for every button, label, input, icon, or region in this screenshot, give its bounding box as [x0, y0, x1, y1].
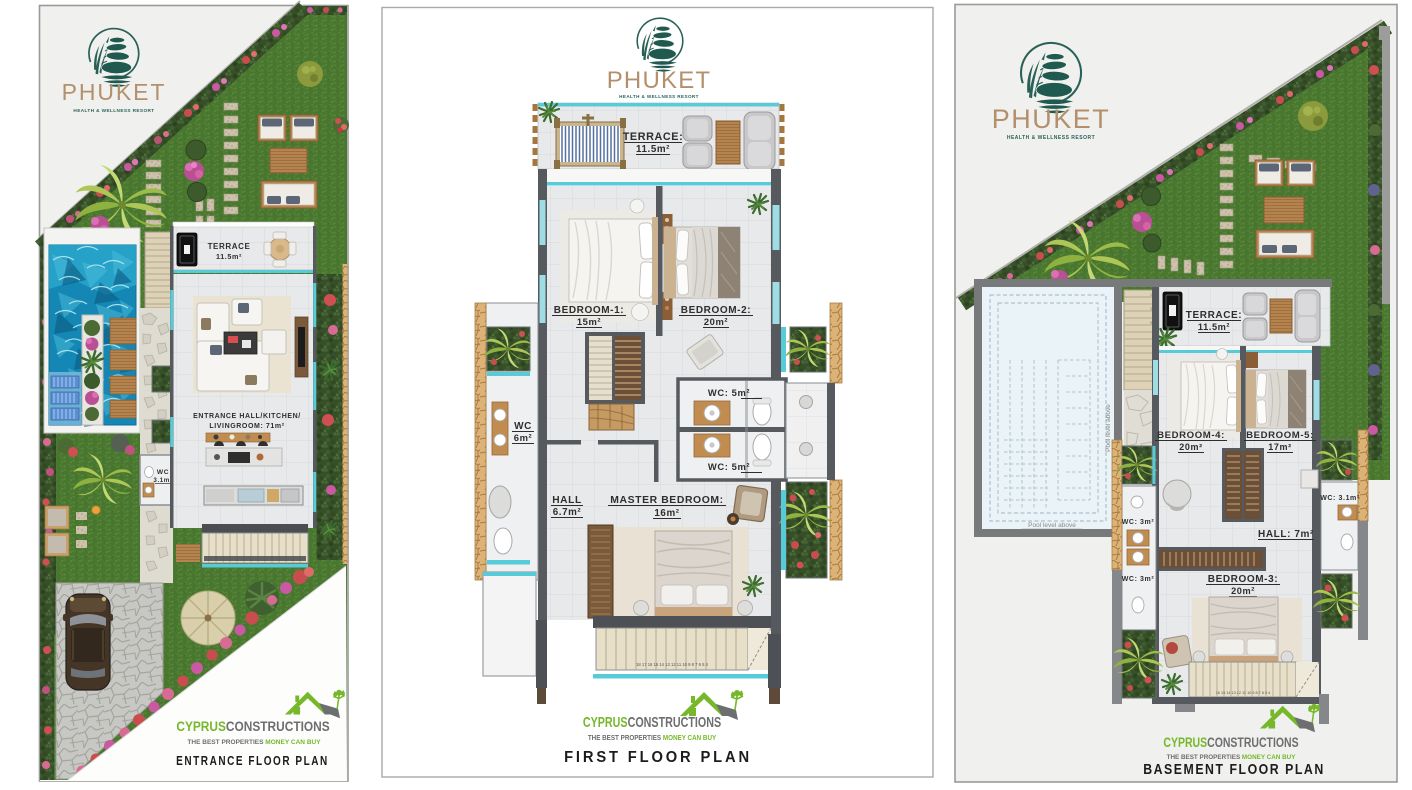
svg-text:BEDROOM-4:: BEDROOM-4:: [1157, 430, 1225, 441]
svg-text:17m²: 17m²: [1268, 442, 1291, 452]
svg-text:11.5m²: 11.5m²: [1198, 322, 1230, 332]
svg-text:HALL: 7m²: HALL: 7m²: [1258, 529, 1314, 540]
svg-text:PHUKET: PHUKET: [62, 79, 167, 105]
svg-text:3: 3: [1150, 307, 1152, 311]
svg-text:CYPRUSCONSTRUCTIONS: CYPRUSCONSTRUCTIONS: [176, 718, 330, 734]
svg-text:PHUKET: PHUKET: [992, 104, 1111, 134]
svg-text:HEALTH & WELLNESS RESORT: HEALTH & WELLNESS RESORT: [1007, 135, 1095, 141]
svg-text:TERRACE:: TERRACE:: [1186, 310, 1242, 321]
svg-text:THE BEST PROPERTIES MONEY CAN: THE BEST PROPERTIES MONEY CAN BUY: [1167, 754, 1296, 761]
svg-text:FIRST FLOOR PLAN: FIRST FLOOR PLAN: [564, 749, 752, 766]
svg-text:BEDROOM-1:: BEDROOM-1:: [554, 305, 624, 316]
svg-text:11.5m²: 11.5m²: [636, 144, 670, 155]
svg-text:THE BEST PROPERTIES MONEY CAN: THE BEST PROPERTIES MONEY CAN BUY: [588, 735, 717, 742]
svg-text:15m²: 15m²: [577, 316, 601, 327]
svg-text:18 17 16 15 14 13 12 11: 18 17 16 15 14 13 12 11 10 9 8 7 6 5 4: [636, 662, 709, 667]
svg-text:PHUKET: PHUKET: [607, 67, 712, 94]
svg-text:20m²: 20m²: [704, 316, 728, 327]
svg-text:3.1m²: 3.1m²: [153, 477, 172, 484]
svg-text:TERRACE: TERRACE: [208, 242, 251, 251]
svg-text:HALL: HALL: [552, 495, 582, 506]
svg-text:20m²: 20m²: [1231, 586, 1255, 596]
svg-text:5: 5: [1150, 321, 1152, 325]
svg-text:ENTRANCE FLOOR PLAN: ENTRANCE FLOOR PLAN: [176, 754, 329, 769]
svg-text:WC: WC: [514, 421, 532, 432]
svg-text:THE BEST PROPERTIES MONEY CAN: THE BEST PROPERTIES MONEY CAN BUY: [187, 739, 321, 746]
svg-text:HEALTH & WELLNESS RESORT: HEALTH & WELLNESS RESORT: [73, 108, 154, 113]
svg-text:WC: 3m²: WC: 3m²: [1122, 519, 1155, 526]
svg-text:BEDROOM-3:: BEDROOM-3:: [1208, 574, 1278, 585]
svg-text:WC: 5m²: WC: 5m²: [708, 461, 750, 472]
svg-text:CYPRUSCONSTRUCTIONS: CYPRUSCONSTRUCTIONS: [583, 713, 721, 730]
svg-text:1: 1: [1150, 293, 1152, 297]
svg-text:Pool level above: Pool level above: [1028, 522, 1076, 529]
svg-text:WC: 3.1m²: WC: 3.1m²: [1320, 495, 1360, 502]
svg-text:WC: WC: [157, 469, 169, 476]
svg-text:CYPRUSCONSTRUCTIONS: CYPRUSCONSTRUCTIONS: [1163, 735, 1298, 751]
svg-text:LIVINGROOM: 71m²: LIVINGROOM: 71m²: [209, 423, 284, 430]
svg-text:HEALTH & WELLNESS RESORT: HEALTH & WELLNESS RESORT: [619, 94, 699, 99]
svg-text:BASEMENT FLOOR PLAN: BASEMENT FLOOR PLAN: [1143, 761, 1325, 777]
svg-text:11.5m²: 11.5m²: [216, 252, 242, 261]
svg-text:BEDROOM-5:: BEDROOM-5:: [1246, 430, 1314, 441]
svg-text:Pool level above: Pool level above: [1105, 404, 1112, 452]
svg-text:16 15 14 13 12 11 10 9 8 7: 16 15 14 13 12 11 10 9 8 7 6 5 4: [1216, 691, 1271, 695]
svg-text:WC: 3m²: WC: 3m²: [1122, 576, 1155, 583]
svg-text:6m²: 6m²: [514, 432, 532, 443]
svg-text:20m²: 20m²: [1179, 442, 1202, 452]
svg-text:6.7m²: 6.7m²: [553, 507, 582, 518]
svg-text:TERRACE:: TERRACE:: [623, 131, 684, 143]
svg-text:16m²: 16m²: [654, 508, 679, 519]
svg-text:BEDROOM-2:: BEDROOM-2:: [681, 305, 751, 316]
svg-text:MASTER BEDROOM:: MASTER BEDROOM:: [610, 495, 723, 506]
svg-text:WC: 5m²: WC: 5m²: [708, 387, 750, 398]
svg-text:ENTRANCE HALL/KITCHEN/: ENTRANCE HALL/KITCHEN/: [193, 413, 301, 420]
